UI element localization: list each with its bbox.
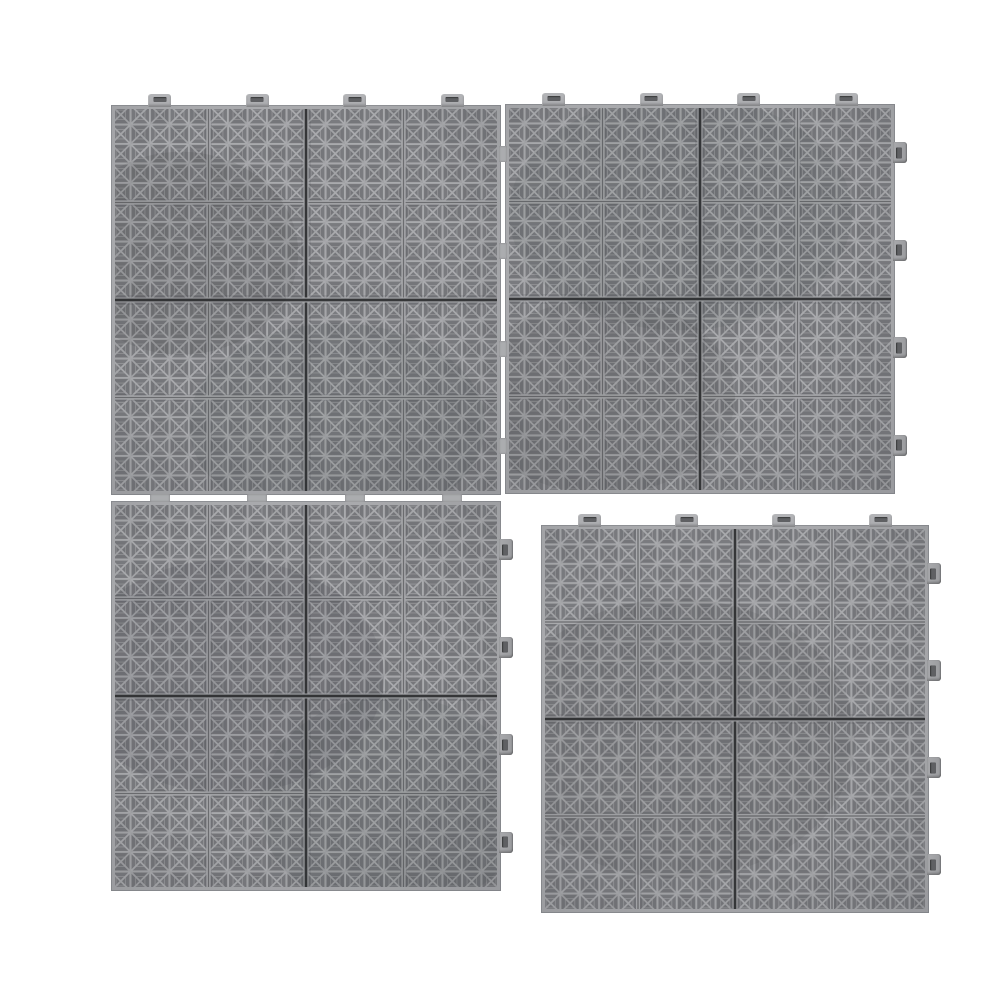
connector-tab-slot	[645, 96, 658, 101]
connector-tab-right	[893, 142, 907, 163]
connector-tab-right	[499, 734, 513, 755]
connector-tab-right	[499, 539, 513, 560]
unit-bottom-left	[111, 501, 501, 891]
connector-tab-right	[927, 563, 941, 584]
connector-tab-slot	[547, 96, 560, 101]
connector-tab-top	[675, 514, 698, 527]
connector-tab-slot	[930, 859, 936, 870]
seam-vertical-top-connector	[499, 243, 507, 259]
connector-tab-top	[772, 514, 795, 527]
connector-tab-slot	[153, 97, 166, 102]
unit-bottom-right	[541, 525, 929, 913]
connector-tab-top	[542, 93, 565, 106]
connector-tab-slot	[348, 97, 361, 102]
connector-tab-top	[343, 94, 366, 107]
connector-tab-right	[927, 660, 941, 681]
connector-tab-right	[927, 854, 941, 875]
connector-tab-slot	[251, 97, 264, 102]
connector-tab-slot	[896, 245, 902, 256]
connector-tab-slot	[896, 440, 902, 451]
unit-top-right	[505, 104, 895, 494]
connector-tab-slot	[742, 96, 755, 101]
seam-vertical-top-connector	[499, 146, 507, 162]
connector-tab-slot	[874, 517, 887, 522]
tile-surface-pattern	[541, 525, 929, 913]
seam-horizontal-left-connector	[150, 494, 170, 502]
connector-tab-slot	[896, 147, 902, 158]
connector-tab-top	[441, 94, 464, 107]
connector-tab-slot	[680, 517, 693, 522]
connector-tab-top	[737, 93, 760, 106]
connector-tab-slot	[930, 665, 936, 676]
connector-tab-top	[869, 514, 892, 527]
connector-tab-top	[835, 93, 858, 106]
connector-tab-slot	[896, 342, 902, 353]
product-photo-gray-interlocking-floor-tiles	[0, 0, 1000, 1000]
connector-tab-top	[640, 93, 663, 106]
connector-tab-right	[893, 337, 907, 358]
connector-tab-right	[893, 435, 907, 456]
connector-tab-top	[578, 514, 601, 527]
connector-tab-slot	[777, 517, 790, 522]
seam-horizontal-left-connector	[247, 494, 267, 502]
connector-tab-right	[893, 240, 907, 261]
connector-tab-top	[246, 94, 269, 107]
seam-vertical-top-connector	[499, 341, 507, 357]
connector-tab-slot	[502, 642, 508, 653]
connector-tab-right	[499, 637, 513, 658]
connector-tab-slot	[583, 517, 596, 522]
connector-tab-slot	[502, 544, 508, 555]
connector-tab-slot	[840, 96, 853, 101]
seam-vertical-top-connector	[499, 438, 507, 454]
connector-tab-slot	[930, 762, 936, 773]
tile-surface-pattern	[111, 105, 501, 495]
connector-tab-slot	[930, 568, 936, 579]
connector-tab-top	[148, 94, 171, 107]
connector-tab-slot	[446, 97, 459, 102]
connector-tab-slot	[502, 739, 508, 750]
unit-top-left	[111, 105, 501, 495]
connector-tab-slot	[502, 837, 508, 848]
tile-surface-pattern	[111, 501, 501, 891]
tile-surface-pattern	[505, 104, 895, 494]
connector-tab-right	[927, 757, 941, 778]
connector-tab-right	[499, 832, 513, 853]
seam-horizontal-left-connector	[345, 494, 365, 502]
seam-horizontal-left-connector	[442, 494, 462, 502]
